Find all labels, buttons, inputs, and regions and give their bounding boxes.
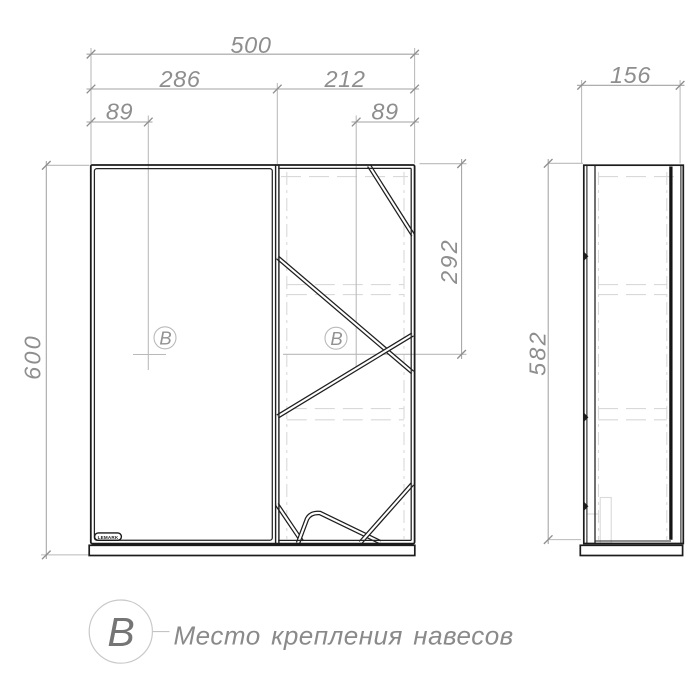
svg-text:212: 212 (323, 66, 365, 92)
svg-text:292: 292 (436, 238, 462, 285)
svg-text:Место крепления навесов: Место крепления навесов (174, 621, 514, 651)
svg-text:89: 89 (371, 99, 398, 125)
svg-text:500: 500 (230, 32, 271, 58)
svg-text:582: 582 (525, 330, 551, 376)
svg-text:156: 156 (610, 62, 651, 88)
svg-text:286: 286 (158, 66, 200, 92)
svg-text:600: 600 (20, 334, 46, 380)
svg-text:LEMARK: LEMARK (98, 535, 119, 540)
svg-text:В: В (107, 609, 134, 655)
svg-text:В: В (159, 328, 171, 349)
svg-text:89: 89 (106, 99, 133, 125)
svg-text:В: В (330, 328, 342, 349)
